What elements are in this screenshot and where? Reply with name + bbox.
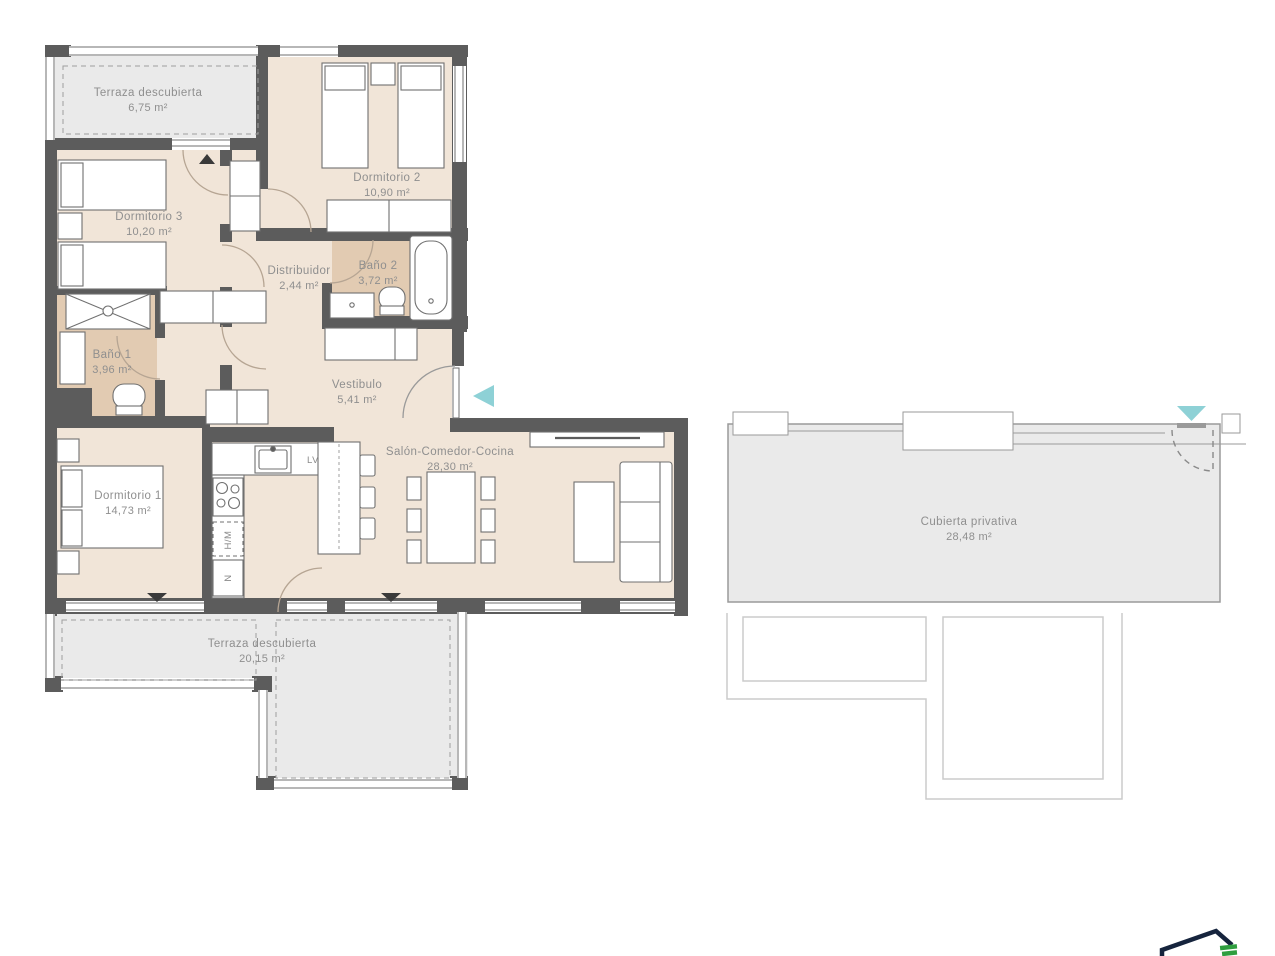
room-label-terraza-superior: Terraza descubierta bbox=[94, 87, 203, 99]
room-area-distribuidor: 2,44 m² bbox=[279, 280, 318, 292]
entrance-arrow-icon bbox=[473, 385, 494, 407]
room-label-dormitorio-1: Dormitorio 1 bbox=[94, 490, 161, 502]
bathtub bbox=[410, 236, 452, 320]
floor-plan-drawing: Terraza descubierta 6,75 m² Dormitorio 2… bbox=[0, 0, 1275, 956]
roof-element bbox=[733, 412, 788, 435]
room-label-distribuidor: Distribuidor bbox=[268, 265, 331, 277]
room-area-cubierta: 28,48 m² bbox=[946, 531, 992, 543]
roof-area bbox=[728, 424, 1220, 602]
shower-tray bbox=[66, 294, 150, 329]
room-area-dormitorio-3: 10,20 m² bbox=[126, 226, 172, 238]
room-area-terraza-inferior: 20,15 m² bbox=[239, 653, 285, 665]
roof-element bbox=[903, 412, 1013, 450]
stool bbox=[360, 455, 375, 476]
chair bbox=[481, 509, 495, 532]
room-label-dormitorio-2: Dormitorio 2 bbox=[353, 172, 420, 184]
chair bbox=[407, 477, 421, 500]
nightstand bbox=[58, 213, 82, 239]
sofa bbox=[620, 462, 672, 582]
roof-element bbox=[1222, 414, 1240, 433]
stool bbox=[360, 518, 375, 539]
logo-green-bar bbox=[1220, 944, 1237, 950]
coffee-table bbox=[574, 482, 614, 562]
door-threshold bbox=[1177, 423, 1206, 428]
lower-level-ghost-outline bbox=[727, 613, 1122, 799]
fridge-label: N bbox=[223, 574, 234, 581]
room-area-terraza-superior: 6,75 m² bbox=[128, 102, 167, 114]
bed-single-4 bbox=[58, 242, 166, 289]
private-roof-plan bbox=[727, 412, 1246, 799]
room-label-vestibulo: Vestibulo bbox=[332, 379, 382, 391]
room-area-bano-2: 3,72 m² bbox=[358, 275, 397, 287]
wardrobe-bedroom3 bbox=[230, 161, 260, 231]
nightstand bbox=[371, 63, 395, 85]
kitchen-island bbox=[318, 442, 360, 554]
room-label-terraza-inferior: Terraza descubierta bbox=[208, 638, 317, 650]
bathroom2-sink bbox=[330, 293, 374, 318]
nightstand bbox=[57, 551, 79, 574]
bathroom1-sink bbox=[60, 332, 85, 384]
tv-unit bbox=[530, 432, 664, 447]
hall-wardrobe bbox=[206, 390, 268, 424]
dining-table bbox=[427, 472, 475, 563]
room-area-dormitorio-2: 10,90 m² bbox=[364, 187, 410, 199]
wardrobe-bedroom2 bbox=[327, 200, 451, 232]
room-area-dormitorio-1: 14,73 m² bbox=[105, 505, 151, 517]
chair bbox=[481, 477, 495, 500]
bed-single-1 bbox=[322, 63, 368, 168]
bed-single-2 bbox=[398, 63, 444, 168]
nightstand bbox=[57, 439, 79, 462]
chair bbox=[481, 540, 495, 563]
logo-green-bar bbox=[1222, 950, 1237, 956]
room-label-dormitorio-3: Dormitorio 3 bbox=[115, 211, 182, 223]
chair bbox=[407, 509, 421, 532]
cooktop bbox=[213, 478, 243, 516]
room-label-salon: Salón-Comedor-Cocina bbox=[386, 446, 514, 458]
logo-house-outline bbox=[1162, 931, 1232, 956]
room-label-cubierta: Cubierta privativa bbox=[921, 516, 1018, 528]
vestibule-closet bbox=[325, 328, 417, 360]
builder-logo bbox=[1162, 931, 1237, 956]
bed-single-3 bbox=[58, 160, 166, 210]
dishwasher-label: LV bbox=[307, 455, 319, 466]
room-label-bano-2: Baño 2 bbox=[359, 260, 398, 272]
room-area-salon: 28,30 m² bbox=[427, 461, 473, 473]
floor-plan-page: Terraza descubierta 6,75 m² Dormitorio 2… bbox=[0, 0, 1275, 956]
room-area-vestibulo: 5,41 m² bbox=[337, 394, 376, 406]
roof-entrance-arrow-icon bbox=[1177, 406, 1206, 421]
closet-row bbox=[160, 291, 266, 323]
kitchen-sink bbox=[255, 446, 291, 473]
bathroom1-toilet bbox=[113, 384, 145, 415]
stool bbox=[360, 487, 375, 508]
room-label-bano-1: Baño 1 bbox=[93, 349, 132, 361]
chair bbox=[407, 540, 421, 563]
room-area-bano-1: 3,96 m² bbox=[92, 364, 131, 376]
oven-microwave-label: H/M bbox=[223, 531, 234, 550]
bathroom2-toilet bbox=[379, 287, 405, 315]
